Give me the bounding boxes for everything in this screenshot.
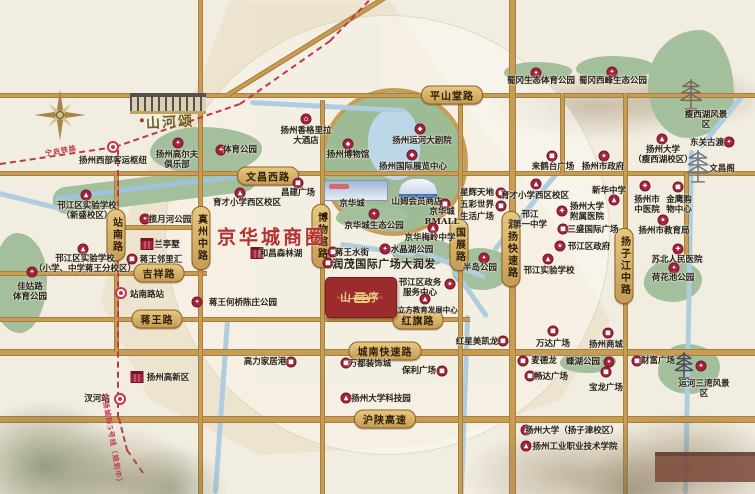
jinghuacheng-mall-illustration [324, 180, 388, 201]
government-icon: ★ [445, 279, 456, 290]
shanhesong-building-illustration [130, 93, 206, 114]
sister-project-label: 山河颂 [140, 111, 195, 134]
expo-icon: ◆ [407, 150, 418, 161]
poi-label: 蜀冈西峰生态公园 [579, 76, 647, 86]
poi-label: 宝龙广场 [589, 383, 623, 393]
poi-label: 京华城生态公园 [344, 221, 404, 231]
poi-label: 运河三湾风景区 [679, 379, 730, 399]
poi-label: 蒋王邻里汇 [140, 255, 183, 265]
river [0, 190, 60, 211]
metro-line [117, 150, 119, 418]
school-icon: ▲ [543, 254, 554, 265]
road-banner: 文昌西路 [237, 167, 299, 186]
poi-label: 高力家居港 [244, 357, 287, 367]
project-badge: 山河序 SHAN HE XU [325, 277, 397, 318]
poi-label: 扬州西部客运枢纽 [79, 156, 147, 166]
mall-icon: ■ [518, 356, 529, 367]
poi-label: 保利广场 [402, 366, 436, 376]
poi-label: 兰亭墅 [154, 240, 180, 250]
project-name-latin: SHAN HE XU [337, 296, 385, 300]
mall-icon: ■ [498, 336, 509, 347]
poi-label: 扬州博物馆 [327, 150, 370, 160]
poi-label: 揽月河公园 [149, 215, 192, 225]
mall-icon: ■ [286, 357, 297, 368]
poi-label: 扬州大学科技园 [351, 394, 411, 404]
park-icon: ✦ [380, 244, 391, 255]
railway-label: 宁启铁路 [44, 143, 77, 158]
poi-label: 星辉天地 [460, 188, 494, 198]
park-icon: ✦ [369, 209, 380, 220]
road-banner: 扬子江中路 [615, 228, 634, 304]
poi-label: 扬州运河大剧院 [392, 136, 452, 146]
poi-label: 扬州商城 [589, 340, 623, 350]
poi-label: 东关古渡 [690, 138, 724, 148]
mall-icon: ■ [601, 367, 612, 378]
poi-label: 体育公园 [223, 145, 257, 155]
metro-icon [115, 287, 127, 299]
poi-label: 麦德龙 [531, 356, 557, 366]
pagoda-illustration-shouxihu [676, 78, 706, 110]
poi-label: 邗江 第一中学 [513, 210, 547, 230]
mall-icon: ■ [127, 254, 138, 265]
poi-label: 瘦西湖风景区 [682, 110, 731, 130]
hospital-icon: ✚ [557, 206, 568, 217]
poi-label: 扬州市教育局 [638, 226, 689, 236]
road-banner: 吉祥路 [134, 264, 185, 283]
poi-label: 润茂国际广场大润发 [332, 257, 436, 270]
mall-icon: ■ [437, 366, 448, 377]
poi-label: 京华梅岭中学 [404, 233, 455, 243]
theater-icon: ◆ [415, 124, 426, 135]
poi-label: 水晶湖公园 [391, 245, 434, 255]
poi-label: 扬州高尔夫 俱乐部 [156, 150, 199, 170]
poi-label: 红星美凯龙 [456, 337, 499, 347]
park-icon: ✦ [479, 253, 490, 264]
poi-label: 邗江实验学校 [523, 266, 574, 276]
school-icon: ▲ [428, 223, 439, 234]
location-map: 京华城商圈 山河颂 山河序 SHAN HE XU 扬州西部客运枢纽✦扬州高尔夫 … [0, 0, 755, 494]
poi-label: 万达广场 [536, 339, 570, 349]
poi-label: 扬州高新区 [147, 373, 190, 383]
poi-label: 扬州大学 （瘦西湖校区） [633, 145, 693, 165]
school-icon: ▲ [235, 188, 246, 199]
poi-label: 佳姑路 体育公园 [13, 282, 47, 302]
poi-label: 扬州香格里拉 大酒店 [280, 126, 331, 146]
government-icon: ★ [658, 215, 669, 226]
mall-icon: ■ [547, 151, 558, 162]
mall-icon: ■ [496, 201, 507, 212]
poi-label: 育才小学西区校区 [501, 191, 569, 201]
mall-icon: ■ [548, 326, 559, 337]
school-icon: ▲ [657, 134, 668, 145]
poi-label: 京华城 [339, 199, 365, 209]
poi-label: 扬州大学（扬子津校区） [525, 426, 619, 436]
poi-label: 扬州大学 附属医院 [570, 202, 604, 222]
road-banner: 蒋王路 [132, 310, 183, 329]
poi-label: 和昌森林湖 [260, 249, 303, 259]
railway-label: 宁扬城际5号线（规划中） [99, 393, 125, 487]
poi-label: 山姆会员商店 [391, 197, 442, 207]
poi-label: 翼立方教育发展中心 [390, 306, 458, 315]
poi-label: 文昌阁 [709, 164, 735, 174]
hospital-icon: ✚ [673, 244, 684, 255]
business-district-label: 京华城商圈 [217, 223, 327, 250]
poi-label: 邗江区实验学校 （小学、中学蒋王分校区） [34, 254, 136, 274]
road [458, 103, 463, 494]
government-icon: ★ [555, 241, 566, 252]
school-icon: ▲ [531, 179, 542, 190]
mall-icon: ■ [293, 178, 304, 189]
sams-club-dome-illustration [398, 178, 438, 198]
government-icon: ★ [599, 151, 610, 162]
road-banner: 沪陕高速 [354, 410, 416, 429]
metro-icon [107, 141, 119, 153]
poi-label: 扬州工业职业技术学院 [532, 442, 617, 452]
poi-label: 蜀冈生态体育公园 [507, 76, 575, 86]
poi-label: 邗江区实验学校 （新盛校区） [57, 201, 117, 221]
building-icon [141, 238, 154, 250]
park-icon: ✦ [724, 137, 735, 148]
school-icon: ▲ [420, 294, 431, 305]
compass-icon [33, 88, 87, 142]
road-banner: 真州中路 [192, 206, 211, 270]
poi-label: 金鹰购 物中心 [666, 195, 692, 215]
road [0, 93, 755, 98]
mall-icon: ■ [603, 328, 614, 339]
park-icon: ✦ [173, 138, 184, 149]
poi-label: 半岛公园 [463, 263, 497, 273]
poi-label: 畅达广场 [534, 372, 568, 382]
poi-label: 站南路站 [130, 290, 164, 300]
park-icon: ✦ [27, 267, 38, 278]
poi-label: 邗江区政府 [568, 242, 611, 252]
poi-label: 生活广场 [460, 212, 494, 222]
park-icon: ✦ [192, 297, 203, 308]
temple-illustration [655, 452, 755, 482]
school-icon: ▲ [609, 195, 620, 206]
poi-label: 来鹤台广场 [532, 162, 575, 172]
poi-label: 万都装饰城 [349, 359, 392, 369]
park-icon: ✦ [669, 263, 680, 274]
hotel-icon: ⌂ [301, 114, 312, 125]
poi-label: 荷花池公园 [652, 273, 695, 283]
hospital-icon: ✚ [640, 181, 651, 192]
poi-label: 扬州国际展览中心 [379, 162, 447, 172]
poi-label: 扬州市 中医院 [634, 195, 660, 215]
poi-label: 蝶湖公园 [566, 357, 600, 367]
poi-label: 新华中学 [592, 186, 626, 196]
poi-label: 昌建广场 [281, 188, 315, 198]
poi-label: 扬州市政府 [582, 162, 625, 172]
road-banner: 城南快速路 [349, 342, 422, 361]
school-icon: ▲ [521, 441, 532, 452]
park-icon: ✦ [696, 361, 707, 372]
mall-icon: ■ [673, 182, 684, 193]
poi-label: 育才小学西区校区 [213, 198, 281, 208]
school-icon: ▲ [81, 190, 92, 201]
metro-line [126, 449, 144, 473]
poi-label: 五彩世界 [460, 200, 494, 210]
building-icon [131, 371, 144, 383]
poi-label: 三盛国际广场 [567, 225, 618, 235]
metro-icon [114, 393, 126, 405]
school-icon: ▲ [341, 393, 352, 404]
museum-icon: ◆ [343, 139, 354, 150]
poi-label: 蒋王何桥陈庄公园 [209, 298, 277, 308]
poi-label: 财富广场 [641, 356, 675, 366]
road-banner: 平山堂路 [421, 86, 483, 105]
